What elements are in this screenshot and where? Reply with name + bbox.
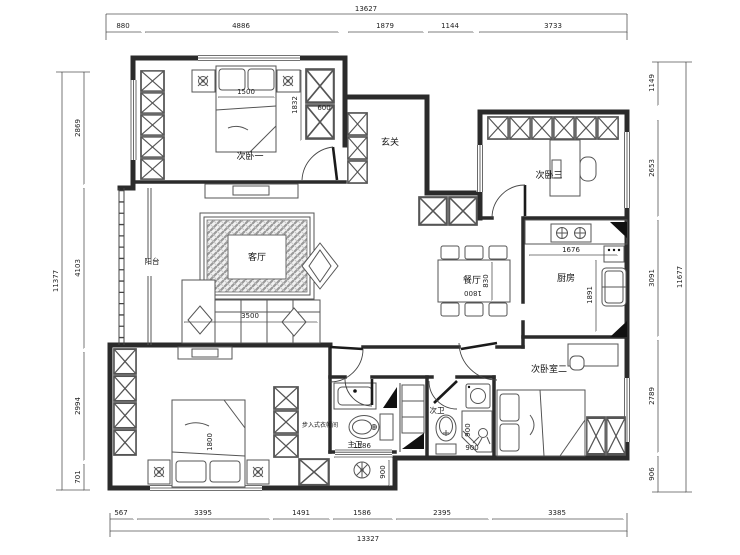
dim-cabinet-depth: 600 (317, 104, 330, 112)
kitchen-fridge (602, 268, 626, 306)
exhaust-fan (354, 462, 370, 478)
bedroom1-wardrobe (141, 71, 164, 179)
dim-right-5: 906 (648, 467, 656, 481)
dim-bot-1: 567 (114, 509, 127, 517)
dim-left-1: 2869 (74, 119, 82, 137)
dim-dining-width: 830 (482, 274, 490, 287)
dim-left-3: 2994 (74, 397, 82, 415)
dim-kitchen-width: 1676 (562, 246, 580, 254)
dim-top-5: 3733 (544, 22, 562, 30)
dimension-chain-right: 1149 2653 3091 2789 906 11677 (648, 62, 692, 492)
dim-bot-3: 1491 (292, 509, 310, 517)
bedroom1-door (302, 147, 337, 180)
label-kitchen: 厨房 (557, 272, 575, 284)
dim-cabinet-height: 1832 (291, 96, 299, 114)
dim-left-total: 11377 (52, 270, 60, 292)
label-living: 客厅 (248, 251, 266, 263)
floor-plan-page: 1500 1832 600 3500 1800 830 1676 1891 18… (0, 0, 740, 555)
master-bath-toilet (349, 414, 393, 440)
dim-sofa: 3500 (241, 312, 259, 320)
label-closet: 步入式衣帽间 (302, 421, 338, 429)
dim-right-1: 1149 (648, 74, 656, 92)
shoe-cabinet (419, 197, 477, 225)
bedroom1-bed (216, 66, 276, 152)
balcony-rail (119, 188, 124, 345)
label-balcony: 阳台 (145, 256, 160, 266)
floor-plan-drawing: 1500 1832 600 3500 1800 830 1676 1891 18… (0, 0, 740, 555)
master-tv-cabinet (178, 347, 232, 359)
dim-master-bed: 1800 (206, 433, 214, 451)
dim-right-2: 2653 (648, 159, 656, 177)
dim-top-1: 880 (116, 22, 129, 30)
master-bath-flue (383, 387, 397, 408)
study-desk (550, 140, 596, 196)
label-bedroom2: 次卧室二 (531, 363, 567, 375)
second-bath-toilet (436, 415, 456, 454)
master-bath-sink (334, 383, 376, 409)
dim-bot-4: 1586 (353, 509, 371, 517)
dim-top-3: 1879 (376, 22, 394, 30)
dim-bot-5: 2395 (433, 509, 451, 517)
dim-right-total: 11677 (676, 266, 684, 288)
bedroom2-desk (568, 344, 618, 370)
bath-divider-cabinet (402, 385, 424, 449)
study-wardrobe (488, 117, 618, 139)
label-second-bath: 次卫 (430, 405, 445, 415)
dim-left-2: 4103 (74, 259, 82, 277)
label-master-bath: 主卫 (348, 439, 363, 449)
second-bath-door (429, 381, 457, 409)
label-dining: 餐厅 (463, 274, 481, 286)
dimension-chain-left: 2869 4103 2994 701 11377 (52, 72, 90, 490)
dim-kitchen-depth: 1891 (586, 286, 594, 304)
dim-top-4: 1144 (441, 22, 459, 30)
dim-shower-depth: 900 (464, 423, 472, 436)
dim-left-4: 701 (74, 470, 82, 483)
study-door (492, 185, 525, 218)
master-wardrobe (114, 349, 136, 455)
label-bedroom1: 次卧一 (236, 150, 263, 162)
bedroom2-bed (497, 390, 585, 456)
dim-bottom-total: 13327 (357, 535, 379, 543)
balcony-sliding-door (148, 188, 151, 345)
dim-right-4: 2789 (648, 387, 656, 405)
bedroom2-door (459, 343, 497, 380)
bedroom2-wardrobe (587, 418, 625, 455)
dim-top-total: 13627 (355, 5, 377, 13)
dim-bot-6: 3385 (548, 509, 566, 517)
dim-right-3: 3091 (648, 269, 656, 287)
label-entry: 玄关 (381, 136, 399, 148)
label-study: 次卧三 (535, 169, 562, 181)
dimension-chain-bottom: 567 3395 1491 1586 2395 3385 13327 (110, 509, 627, 543)
second-bath-washer (466, 384, 490, 408)
dim-shower-width: 900 (465, 444, 478, 452)
dim-bot-2: 3395 (194, 509, 212, 517)
dimension-chain-top: 13627 880 4886 1879 1144 3733 (106, 5, 627, 40)
walkin-closet-cabinets (274, 387, 329, 485)
kitchen-oven (604, 246, 624, 262)
entry-cabinet (348, 113, 367, 183)
living-tv-cabinet (205, 184, 298, 198)
dim-top-2: 4886 (232, 22, 250, 30)
dim-bath-depth: 900 (379, 465, 387, 478)
dim-dining-length: 1800 (464, 289, 482, 297)
kitchen-stove (551, 224, 591, 242)
dim-bed1: 1500 (237, 88, 255, 96)
